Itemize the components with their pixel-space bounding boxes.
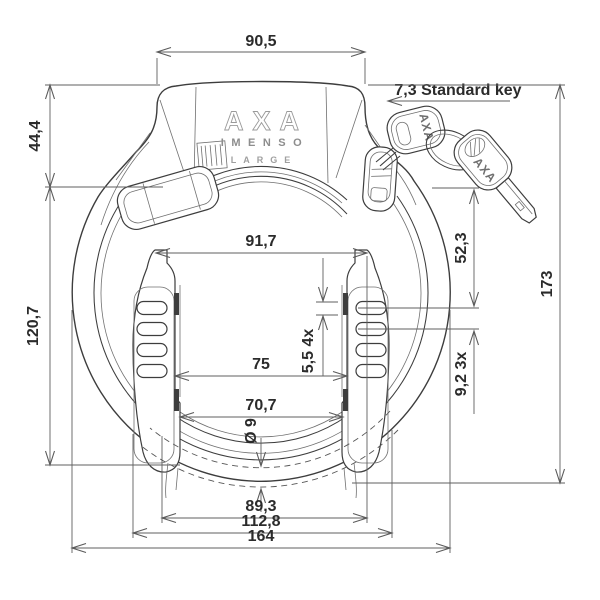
brand-model: IMENSO: [221, 137, 309, 149]
right-mount-slot-lower: [343, 389, 348, 411]
key-cylinder: [362, 146, 398, 212]
dim-label-upper-left: 44,4: [27, 120, 44, 151]
left-rib-4: [137, 365, 167, 378]
right-rib-3: [356, 344, 386, 357]
dim-label-overall-width: 164: [248, 528, 275, 545]
dim-label-bolt-diameter: Ø 9: [243, 418, 260, 444]
right-mount-rib-4: [356, 365, 386, 378]
left-rib-1: [137, 302, 167, 315]
left-jaw: [133, 250, 180, 498]
dim-label-top-width: 90,5: [245, 33, 276, 50]
dim-label-lower-left: 120,7: [25, 306, 42, 346]
dim-label-cylinder-to-ribs: 52,3: [453, 232, 470, 263]
dim-label-opening-width: 75: [252, 356, 270, 373]
left-rib-3: [137, 344, 167, 357]
dim-label-rib-height: 5,5 4x: [300, 329, 317, 374]
dim-label-overall-height: 173: [539, 271, 556, 298]
left-rib-2: [137, 323, 167, 336]
right-mount-slot-upper: [343, 293, 348, 315]
dim-label-rib-pitch: 9,2 3x: [453, 352, 470, 397]
brand-logo: AXA: [224, 106, 308, 136]
dim-label-opening-top-width: 91,7: [245, 233, 276, 250]
technical-drawing: AXA IMENSO LARGE: [0, 0, 600, 600]
brand-text: AXA IMENSO LARGE: [221, 106, 309, 165]
left-mount-slot-upper: [174, 293, 179, 315]
left-mount-slot-lower: [174, 389, 179, 411]
right-jaw: [342, 250, 389, 498]
brand-size: LARGE: [231, 155, 298, 165]
dim-label-opening-bottom-width: 70,7: [245, 397, 276, 414]
